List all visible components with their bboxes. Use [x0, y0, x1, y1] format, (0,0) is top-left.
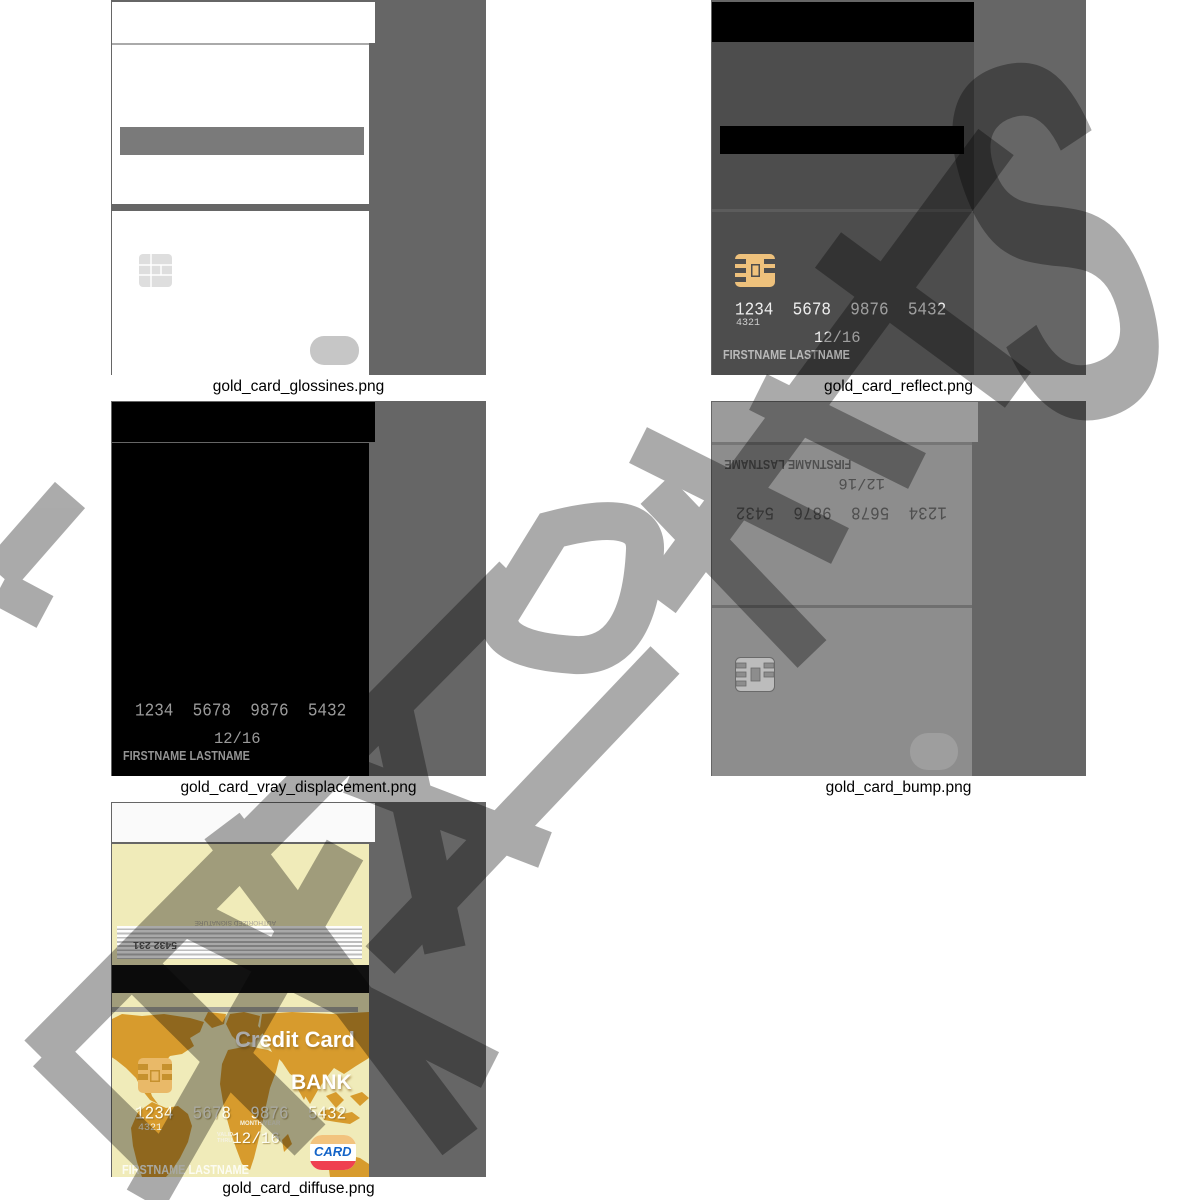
svg-text:S: S [883, 0, 1200, 543]
